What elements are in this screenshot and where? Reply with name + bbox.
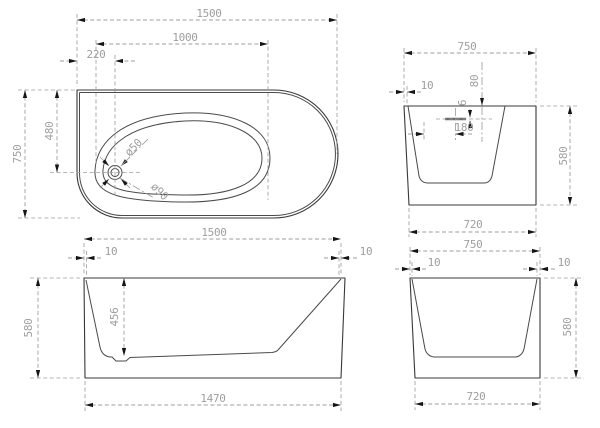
basin-outline-outer (95, 113, 270, 202)
end-bottom-outline (410, 278, 540, 378)
end-top-basin (408, 106, 505, 183)
dim-front-base: 1470 (200, 392, 225, 405)
end-view-top: 80 6 180 750 10 580 720 (389, 40, 578, 237)
drawing-canvas: ø50 ø90 1500 1000 220 750 480 (0, 0, 600, 428)
end-view-bottom: 750 10 10 580 720 (395, 238, 584, 410)
dim-endbottom-width: 750 (464, 238, 483, 251)
dim-plan-overall-length: 1500 (196, 7, 221, 20)
dim-endtop-drain-gap: 6 (456, 100, 469, 106)
dim-front-height: 580 (22, 319, 35, 338)
front-outline (84, 278, 345, 378)
end-bottom-basin (412, 279, 537, 357)
bathtub-technical-drawing: ø50 ø90 1500 1000 220 750 480 (0, 0, 600, 428)
dim-plan-drain-offset-y: 480 (43, 122, 56, 141)
tub-outline-outer (77, 90, 338, 218)
dim-endbottom-base: 720 (467, 390, 486, 403)
dim-front-wall-left: 10 (105, 245, 118, 258)
basin-outline-inner (103, 121, 262, 195)
plan-view: ø50 ø90 1500 1000 220 750 480 (11, 7, 338, 218)
dim-front-length: 1500 (201, 226, 226, 239)
dim-endtop-base: 720 (464, 218, 483, 231)
dim-plan-overall-width: 750 (11, 145, 24, 164)
dim-drain-large: ø90 (148, 180, 171, 203)
dim-endtop-width: 750 (458, 40, 477, 53)
dim-plan-inner-length: 1000 (172, 31, 197, 44)
dim-endbottom-height: 580 (561, 318, 574, 337)
front-view: 1500 10 10 580 456 1470 (22, 226, 372, 411)
dim-endtop-wall: 10 (421, 79, 434, 92)
dim-endtop-drain-depth: 80 (468, 75, 481, 88)
dim-endbottom-wall-left: 10 (428, 256, 441, 269)
dim-endtop-height: 580 (557, 147, 570, 166)
dim-drain-small: ø50 (122, 136, 145, 159)
dim-endbottom-wall-right: 10 (558, 256, 571, 269)
dim-endtop-drain-position: 180 (455, 121, 474, 134)
dim-front-depth: 456 (108, 308, 121, 327)
dim-front-wall-right: 10 (360, 245, 373, 258)
tub-outline-rim (80, 93, 336, 216)
dim-plan-drain-offset-x: 220 (87, 48, 106, 61)
